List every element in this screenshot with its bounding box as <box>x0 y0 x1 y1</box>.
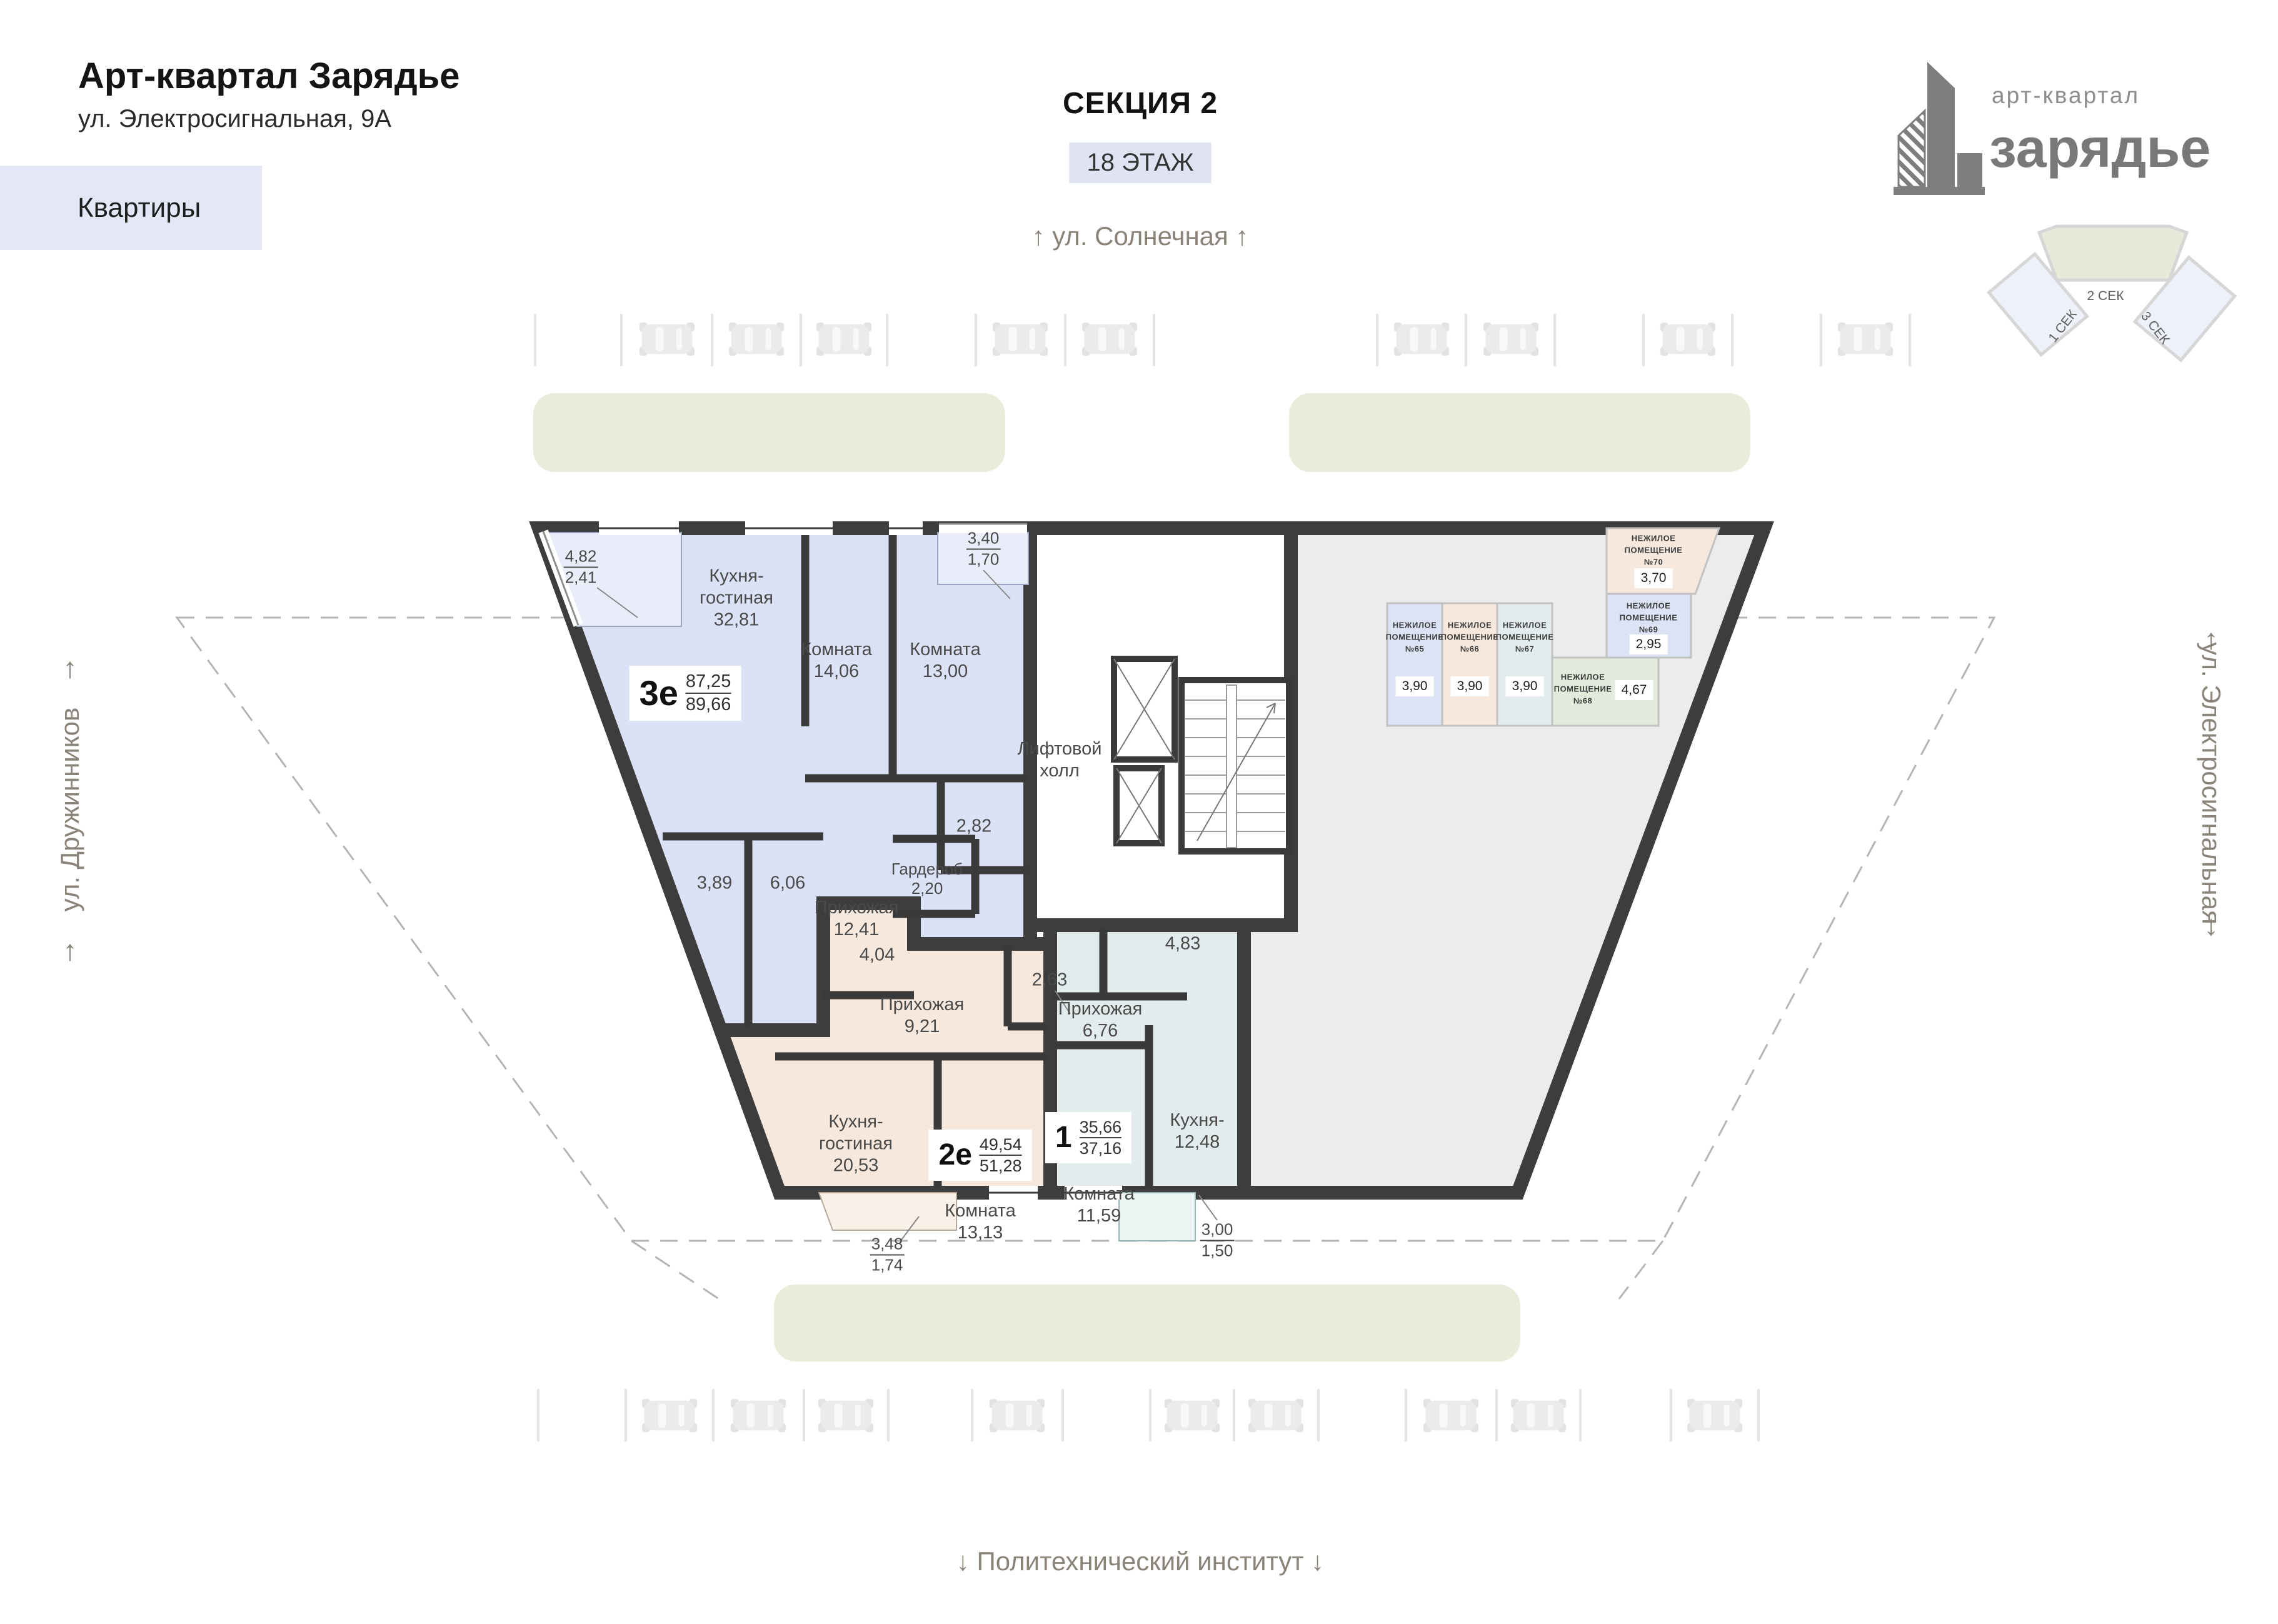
green-strip-bottom <box>774 1285 1520 1361</box>
nonres-69-value: 2,95 <box>1630 634 1668 654</box>
floorplan-canvas <box>0 0 2278 1624</box>
nonres-69-label: НЕЖИЛОЕПОМЕЩЕНИЕ№69 <box>1620 600 1678 636</box>
car-icon <box>816 323 871 356</box>
car-icon <box>1483 323 1538 356</box>
nonres-70-label: НЕЖИЛОЕПОМЕЩЕНИЕ№70 <box>1625 533 1683 568</box>
elevator-hall-label: Лифтовойхолл <box>1018 738 1102 782</box>
car-icon <box>731 1399 786 1432</box>
car-icon <box>990 1399 1045 1432</box>
car-icon <box>1511 1399 1566 1432</box>
room-label: 4,04 <box>860 945 895 966</box>
room-label: 2,63 <box>1032 970 1067 991</box>
car-icon <box>1082 323 1137 356</box>
car-icon <box>1687 1399 1742 1432</box>
room-label: Комната11,59 <box>1063 1183 1135 1227</box>
balcony-label: 3,401,70 <box>966 529 1001 569</box>
room-label: 3,89 <box>697 873 732 895</box>
staircase <box>1182 680 1289 851</box>
room-label: Прихожая9,21 <box>880 994 964 1038</box>
car-icon <box>1838 323 1893 356</box>
car-icon <box>1660 323 1715 356</box>
car-icon <box>640 323 695 356</box>
room-label: Прихожая12,41 <box>815 897 898 941</box>
car-icon <box>1394 323 1449 356</box>
nonres-67-label: НЕЖИЛОЕПОМЕЩЕНИЕ№67 <box>1496 619 1554 655</box>
room-label: Комната14,06 <box>801 639 872 683</box>
nonres-65-value: 3,90 <box>1396 676 1434 696</box>
nonres-68-value: 4,67 <box>1615 680 1653 700</box>
room-label: Прихожая6,76 <box>1058 998 1142 1042</box>
floorplan-page: Арт-квартал Зарядье ул. Электросигнальна… <box>0 0 2278 1624</box>
nonres-70-value: 3,70 <box>1635 568 1673 588</box>
room-label: Кухня-12,48 <box>1170 1110 1224 1153</box>
green-strip-top-right <box>1289 393 1750 472</box>
room-label: Комната13,00 <box>910 639 981 683</box>
room-label: 2,82 <box>956 816 991 838</box>
nonres-68-label: НЕЖИЛОЕПОМЕЩЕНИЕ№68 <box>1554 671 1612 707</box>
green-strip-top-left <box>533 393 1005 472</box>
apartment-3e-badge[interactable]: 3е 87,25 89,66 <box>630 666 741 721</box>
nonres-66-label: НЕЖИЛОЕПОМЕЩЕНИЕ№66 <box>1441 619 1499 655</box>
balcony-label: 3,001,50 <box>1200 1220 1235 1261</box>
nonres-65-label: НЕЖИЛОЕПОМЕЩЕНИЕ№65 <box>1386 619 1444 655</box>
car-icon <box>1165 1399 1220 1432</box>
room-label: Кухня-гостиная20,53 <box>819 1111 893 1177</box>
car-icon <box>1423 1399 1478 1432</box>
room-label: Комната13,13 <box>945 1200 1016 1244</box>
apartment-2e-badge[interactable]: 2е 49,54 51,28 <box>929 1130 1032 1181</box>
balcony-label: 3,481,74 <box>870 1235 905 1275</box>
car-icon <box>993 323 1048 356</box>
nonres-67-value: 3,90 <box>1506 676 1544 696</box>
car-icon <box>818 1399 873 1432</box>
car-icon <box>729 323 784 356</box>
room-label: 4,83 <box>1165 933 1200 955</box>
nonres-66-value: 3,90 <box>1451 676 1489 696</box>
room-label: Кухня-гостиная32,81 <box>700 566 773 631</box>
parked-cars-top <box>640 323 1893 356</box>
room-label: 6,06 <box>770 873 805 895</box>
apartment-1-badge[interactable]: 1 35,66 37,16 <box>1045 1112 1131 1163</box>
car-icon <box>642 1399 697 1432</box>
parked-cars-bottom <box>642 1399 1742 1432</box>
room-label: Гардероб2,20 <box>891 860 963 898</box>
car-icon <box>1248 1399 1303 1432</box>
balcony-2e <box>819 1193 956 1230</box>
balcony-label: 4,822,41 <box>564 547 598 588</box>
